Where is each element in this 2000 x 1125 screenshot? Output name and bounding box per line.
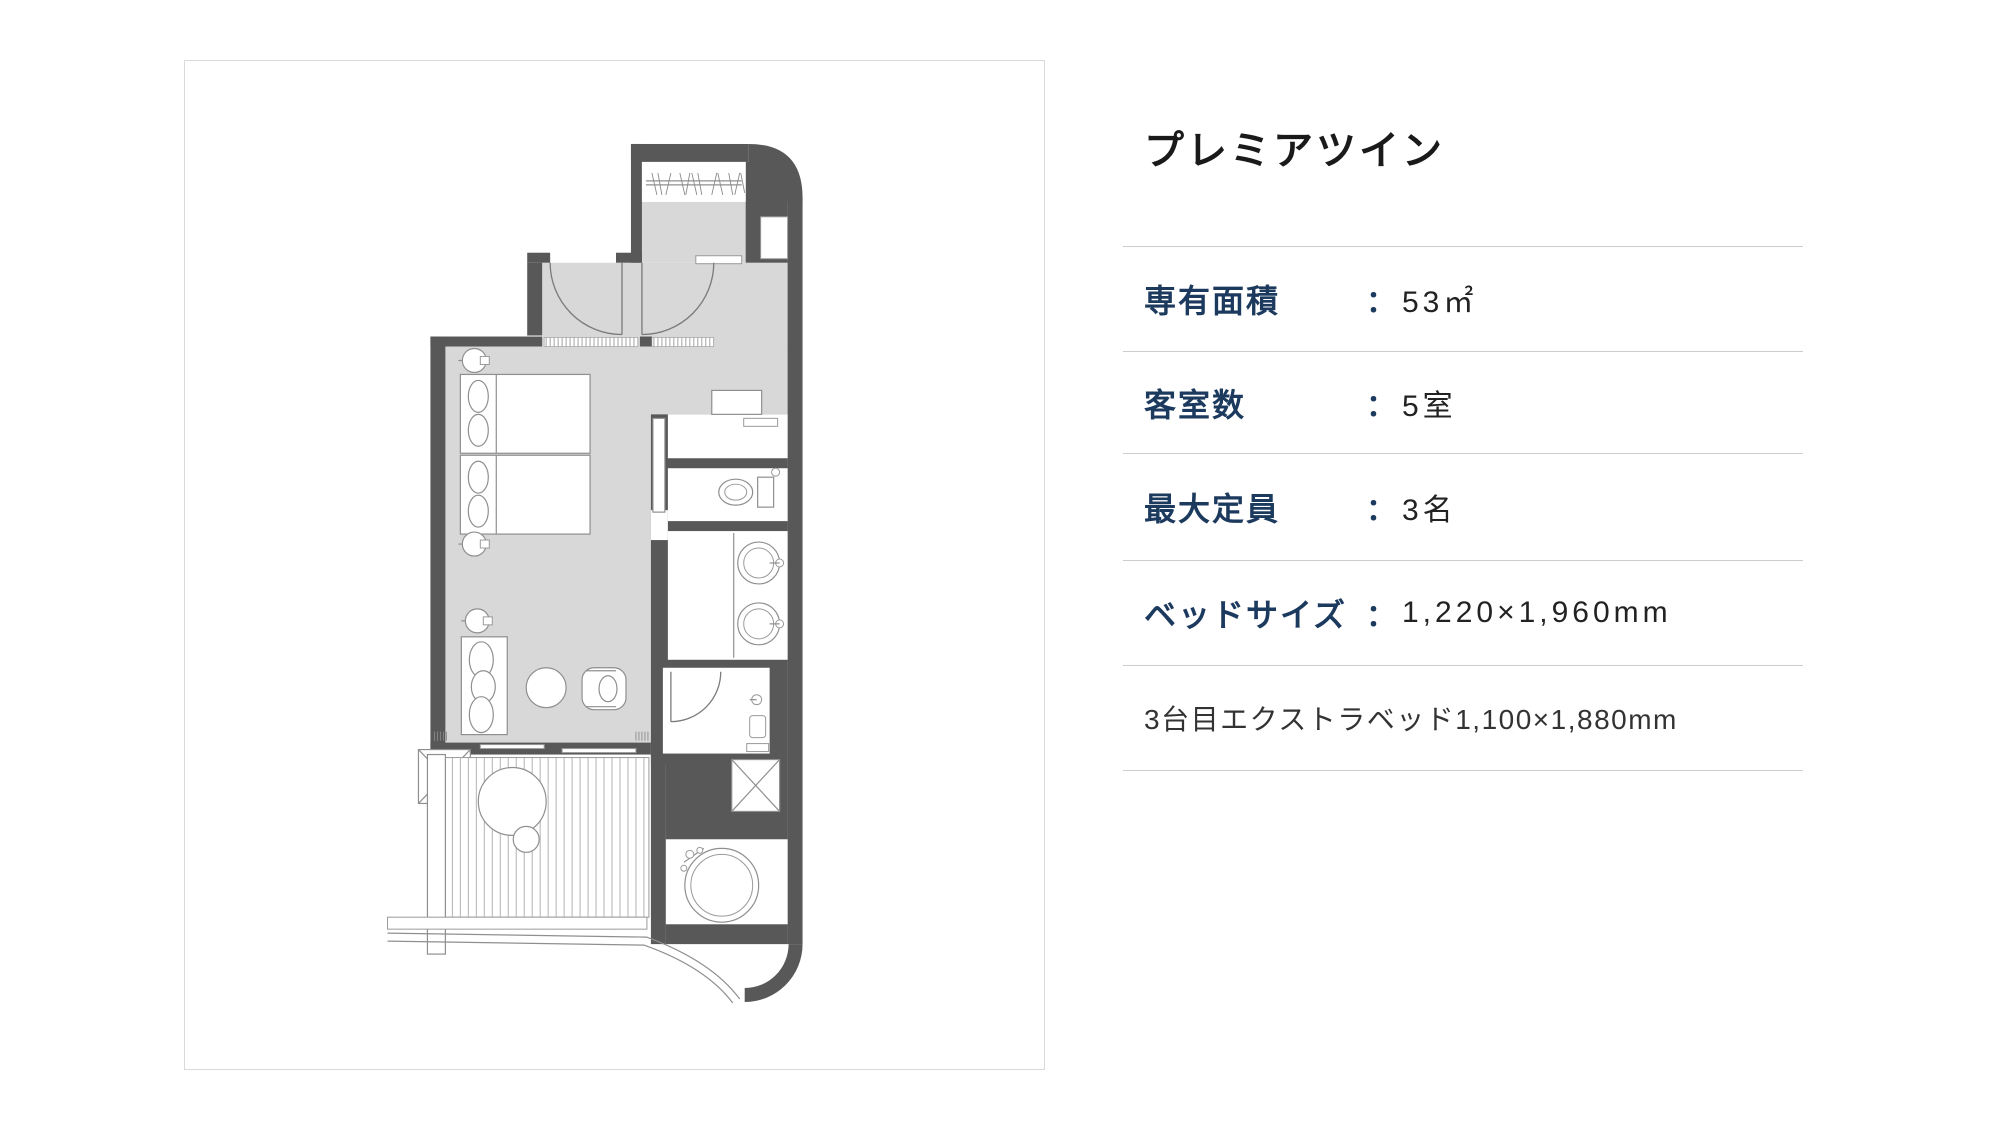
bed-1	[460, 374, 590, 453]
spec-value-room-count: 5室	[1402, 381, 1457, 425]
closet-left-wall	[631, 144, 642, 263]
page: プレミアツイン 専有面積 ： 53㎡ 客室数 ： 5室 最大定員 ： 3名 ベッ…	[0, 0, 2000, 1125]
shower-step	[747, 744, 769, 752]
entry-left-wall	[527, 263, 542, 336]
room-title: プレミアツイン	[1144, 123, 1445, 179]
balcony-table	[478, 768, 546, 836]
spec-label-room-count: 客室数	[1144, 380, 1366, 426]
spec-value-bed-size: 1,220×1,960mm	[1402, 596, 1672, 630]
spec-row-room-count: 客室数 ： 5室	[1123, 351, 1803, 453]
spec-value-area: 53㎡	[1402, 277, 1477, 321]
planter-box-right	[732, 760, 780, 812]
spec-value-capacity: 3名	[1402, 485, 1457, 529]
round-table	[526, 668, 566, 708]
corridor-door-gap	[651, 510, 668, 540]
entry-threshold	[696, 256, 742, 264]
sofa	[461, 637, 507, 735]
spec-table: 専有面積 ： 53㎡ 客室数 ： 5室 最大定員 ： 3名 ベッドサイズ ： 1…	[1123, 246, 1803, 771]
niche	[761, 217, 788, 259]
spec-label-capacity: 最大定員	[1144, 484, 1366, 530]
spec-label-area: 専有面積	[1144, 276, 1366, 322]
tv-board	[653, 418, 665, 512]
counter-tray	[744, 418, 778, 426]
desk-bench	[712, 390, 762, 414]
spec-row-extra-bed-note: 3台目エクストラベッド1,100×1,880mm	[1123, 665, 1803, 770]
shower-room	[663, 668, 770, 754]
shower-bench	[750, 716, 766, 738]
balcony-deck	[445, 758, 649, 918]
balcony-stool	[513, 826, 539, 852]
floor-plan-svg	[185, 61, 1044, 1069]
curved-wall-tail	[745, 944, 803, 1002]
balcony-edge-band	[388, 917, 647, 929]
spec-colon: ：	[1366, 381, 1396, 425]
spec-row-capacity: 最大定員 ： 3名	[1123, 453, 1803, 560]
bed-2	[460, 455, 590, 534]
spec-label-bed-size: ベッドサイズ	[1144, 590, 1366, 636]
spec-row-bed-size: ベッドサイズ ： 1,220×1,960mm	[1123, 560, 1803, 665]
right-outer-wall	[788, 198, 803, 944]
extra-bed-note: 3台目エクストラベッド1,100×1,880mm	[1144, 698, 1678, 738]
armchair	[582, 668, 626, 710]
spec-row-area: 専有面積 ： 53㎡	[1123, 246, 1803, 351]
sill-hatches	[544, 338, 714, 347]
sliding-door-track-1	[480, 745, 544, 749]
spec-colon: ：	[1366, 591, 1396, 635]
floor-plan-card	[184, 60, 1045, 1070]
spec-colon: ：	[1366, 277, 1396, 321]
sliding-door-track-2	[562, 749, 636, 753]
bedroom-left-wall	[430, 337, 445, 755]
spec-colon: ：	[1366, 485, 1396, 529]
